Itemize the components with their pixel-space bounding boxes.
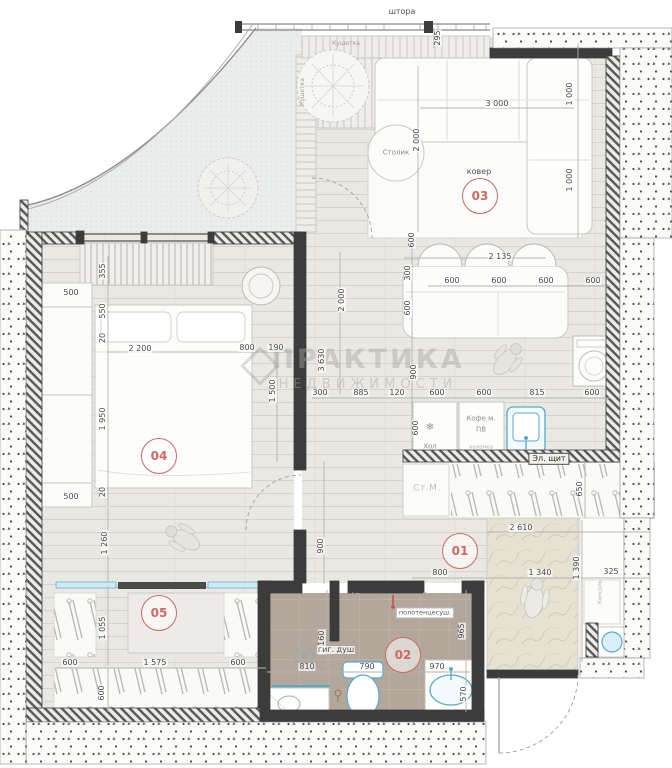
dim-label: 190	[267, 344, 284, 352]
dim-label: 355	[99, 262, 107, 279]
column-label: колонка	[468, 445, 494, 451]
daybed-label: Кушетка	[331, 41, 361, 47]
dim-label: 600	[408, 231, 416, 248]
dim-label: 600	[583, 389, 600, 397]
room-marker-02: 02	[385, 637, 421, 673]
dim-label: 810	[298, 663, 315, 671]
bench-label: Кушетка	[300, 77, 306, 107]
dim-label: 1 500	[269, 379, 277, 404]
dim-label: 790	[358, 663, 375, 671]
dim-label: 800	[238, 344, 255, 352]
dim-label: 1 950	[99, 407, 107, 432]
snowflake-icon: ❄	[425, 423, 435, 433]
dim-label: 650	[576, 480, 584, 497]
fridge-label: Хол	[422, 444, 438, 451]
dim-label: 2 135	[488, 253, 513, 261]
dim-label: 965	[458, 622, 466, 639]
electrical-panel-label: Эл. щит	[528, 453, 569, 465]
dim-label: 325	[602, 568, 619, 576]
dim-label: 20	[99, 486, 107, 498]
rug-label: ковер	[466, 168, 492, 176]
dim-label: 600	[61, 659, 78, 667]
dim-label: 600	[404, 299, 412, 316]
dim-label: 600	[412, 419, 420, 436]
dim-label: 550	[99, 302, 107, 319]
dim-label: 1 390	[573, 556, 581, 581]
labels-layer: 2953 0002 0001 0001 0002 135600600600600…	[0, 0, 672, 768]
dim-label: 2 000	[338, 288, 346, 313]
dim-label: 600	[537, 277, 554, 285]
dim-label: 20	[99, 332, 107, 344]
curtain-label: штора	[388, 8, 417, 16]
dim-label: 800	[431, 569, 448, 577]
dim-label: 600	[475, 389, 492, 397]
coffee-machine-label2: ПВ	[475, 427, 487, 434]
dim-label: 600	[428, 389, 445, 397]
dim-label: 120	[388, 389, 405, 397]
hygienic-shower-label: гиг. душ	[317, 646, 355, 654]
dim-label: 970	[428, 663, 445, 671]
dim-label: 295	[434, 29, 442, 46]
dim-label: 1 000	[566, 168, 574, 193]
dim-label: 600	[584, 277, 601, 285]
dim-label: 500	[62, 493, 79, 501]
dim-label: 570	[460, 685, 468, 702]
console-label: Консоль	[598, 579, 604, 605]
dim-label: 1 340	[528, 569, 553, 577]
room-marker-01: 01	[442, 533, 478, 569]
dim-label: 1 260	[101, 531, 109, 556]
dim-label: 3 000	[485, 100, 510, 108]
dim-label: 500	[62, 289, 79, 297]
towel-dryer-label: полотенцесуш.	[396, 607, 454, 618]
dim-label: 1 055	[99, 616, 107, 641]
dim-label: 885	[352, 389, 369, 397]
dim-label: 3 630	[318, 348, 326, 373]
floor-plan: ПРАКТИКА НЕДВИЖИМОСТИ 2953 0002 0001 000…	[0, 0, 672, 768]
dim-label: 815	[528, 389, 545, 397]
dim-label: 600	[490, 277, 507, 285]
dim-label: 600	[98, 684, 106, 701]
dim-label: 1 000	[566, 82, 574, 107]
dim-label: 900	[317, 537, 325, 554]
dim-label: 2 200	[128, 345, 153, 353]
coffee-machine-label: Кофе м.	[465, 416, 496, 423]
coffee-table-label: Столик	[382, 150, 411, 157]
dim-label: 600	[229, 659, 246, 667]
room-marker-04: 04	[141, 438, 177, 474]
dim-label: 900	[410, 363, 418, 380]
washing-machine-label: Ст.М.	[412, 485, 442, 494]
dim-label: 300	[311, 389, 328, 397]
dim-label: 2 610	[509, 524, 534, 532]
dim-label: 300	[404, 264, 412, 281]
dim-label: 1 575	[143, 659, 168, 667]
dim-label: 600	[443, 277, 460, 285]
room-marker-03: 03	[462, 178, 498, 214]
dim-label: 2 000	[413, 128, 421, 153]
room-marker-05: 05	[141, 595, 177, 631]
